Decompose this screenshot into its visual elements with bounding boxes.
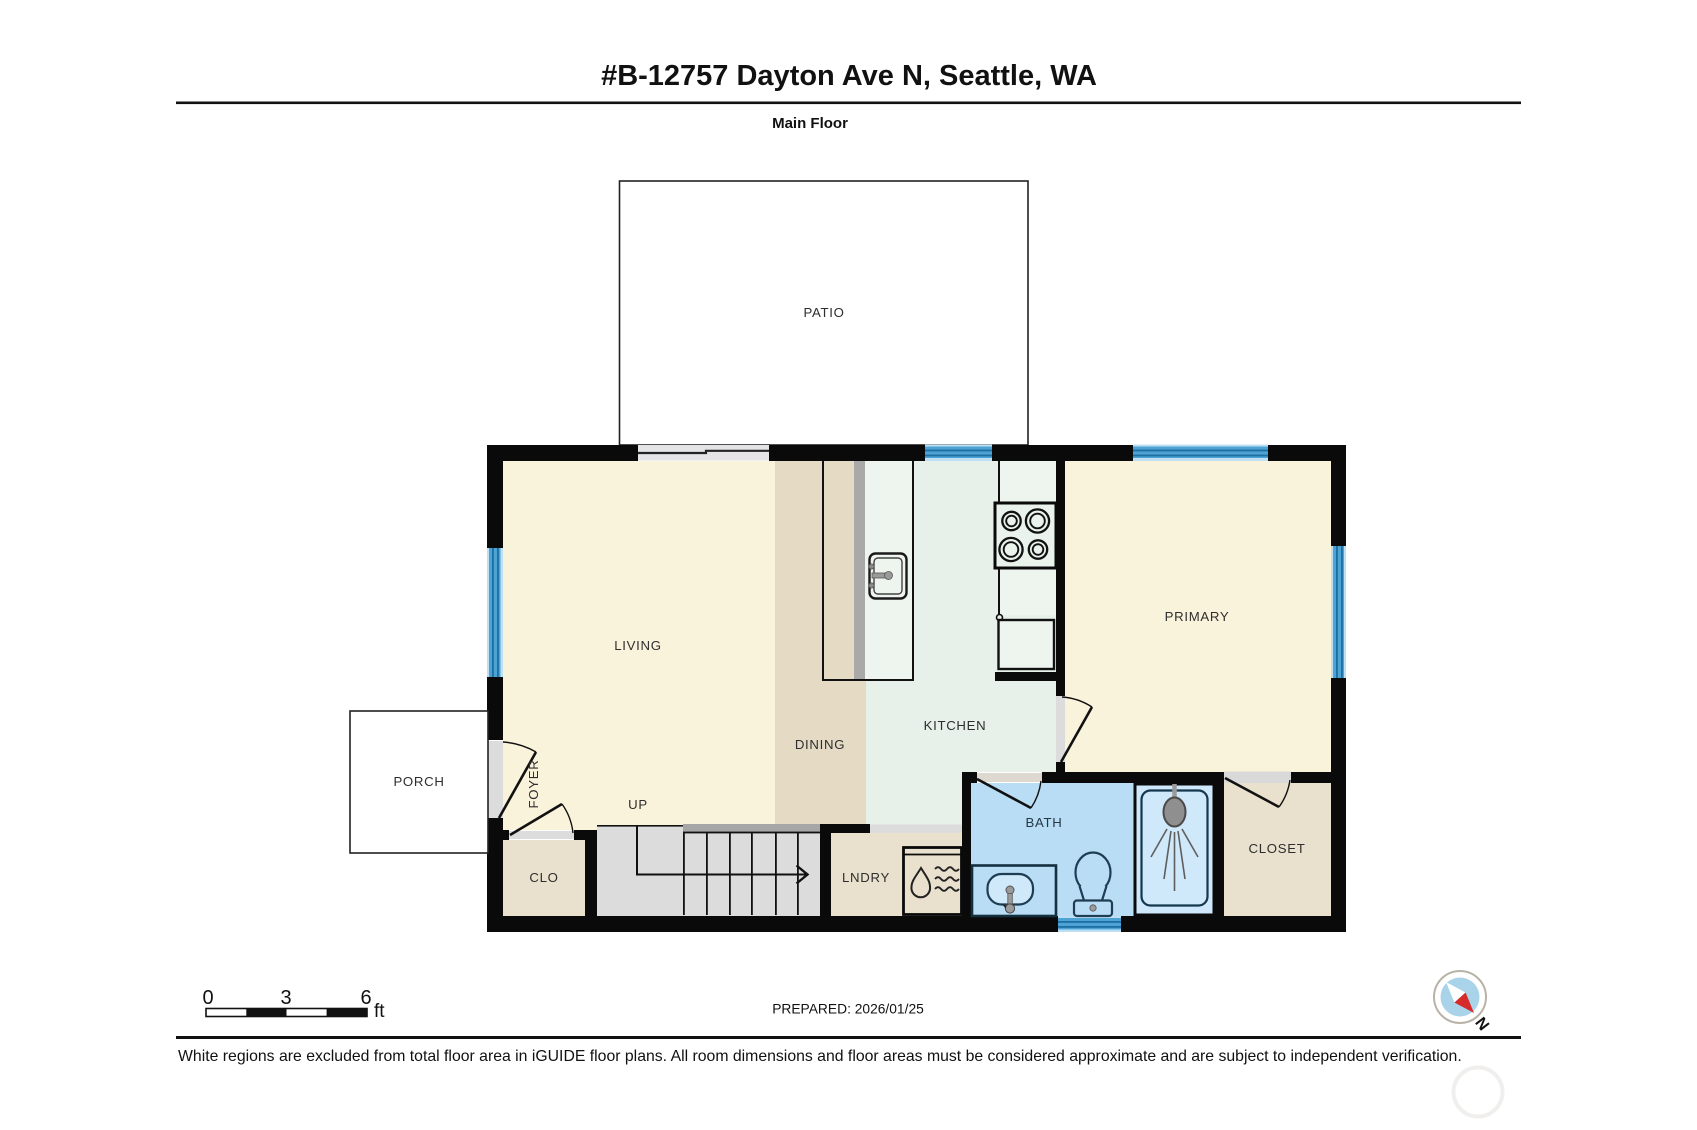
svg-text:CLOSET: CLOSET: [1249, 841, 1306, 856]
svg-text:LIVING: LIVING: [614, 638, 661, 653]
svg-text:PREPARED: 2026/01/25: PREPARED: 2026/01/25: [772, 1002, 924, 1017]
svg-text:PRIMARY: PRIMARY: [1165, 609, 1230, 624]
svg-text:6: 6: [360, 987, 371, 1009]
svg-text:White regions are excluded fro: White regions are excluded from total fl…: [178, 1048, 1462, 1065]
svg-text:CLO: CLO: [529, 870, 558, 885]
svg-text:FOYER: FOYER: [526, 760, 541, 809]
svg-text:PATIO: PATIO: [803, 305, 844, 320]
svg-text:3: 3: [280, 987, 291, 1009]
svg-text:BATH: BATH: [1026, 815, 1063, 830]
svg-text:Main Floor: Main Floor: [772, 115, 848, 132]
svg-text:ft: ft: [374, 1001, 385, 1022]
svg-text:UP: UP: [628, 797, 648, 812]
svg-text:DINING: DINING: [795, 737, 845, 752]
svg-text:PORCH: PORCH: [393, 774, 444, 789]
svg-text:KITCHEN: KITCHEN: [924, 718, 987, 733]
svg-text:0: 0: [202, 987, 213, 1009]
svg-text:LNDRY: LNDRY: [842, 870, 890, 885]
svg-text:#B-12757 Dayton Ave N, Seattle: #B-12757 Dayton Ave N, Seattle, WA: [601, 60, 1097, 92]
